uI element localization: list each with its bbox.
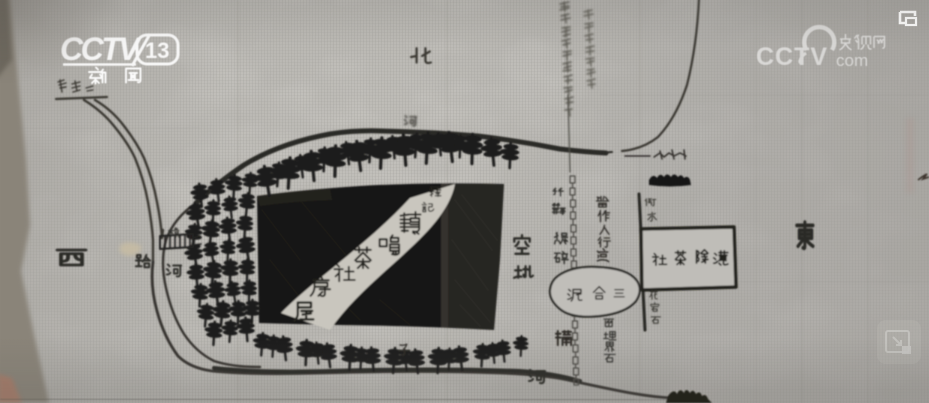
svg-text:CCTV: CCTV xyxy=(756,43,828,71)
svg-text:com: com xyxy=(836,51,868,70)
svg-text:13: 13 xyxy=(145,38,169,63)
svg-text:CCTV: CCTV xyxy=(60,31,142,67)
